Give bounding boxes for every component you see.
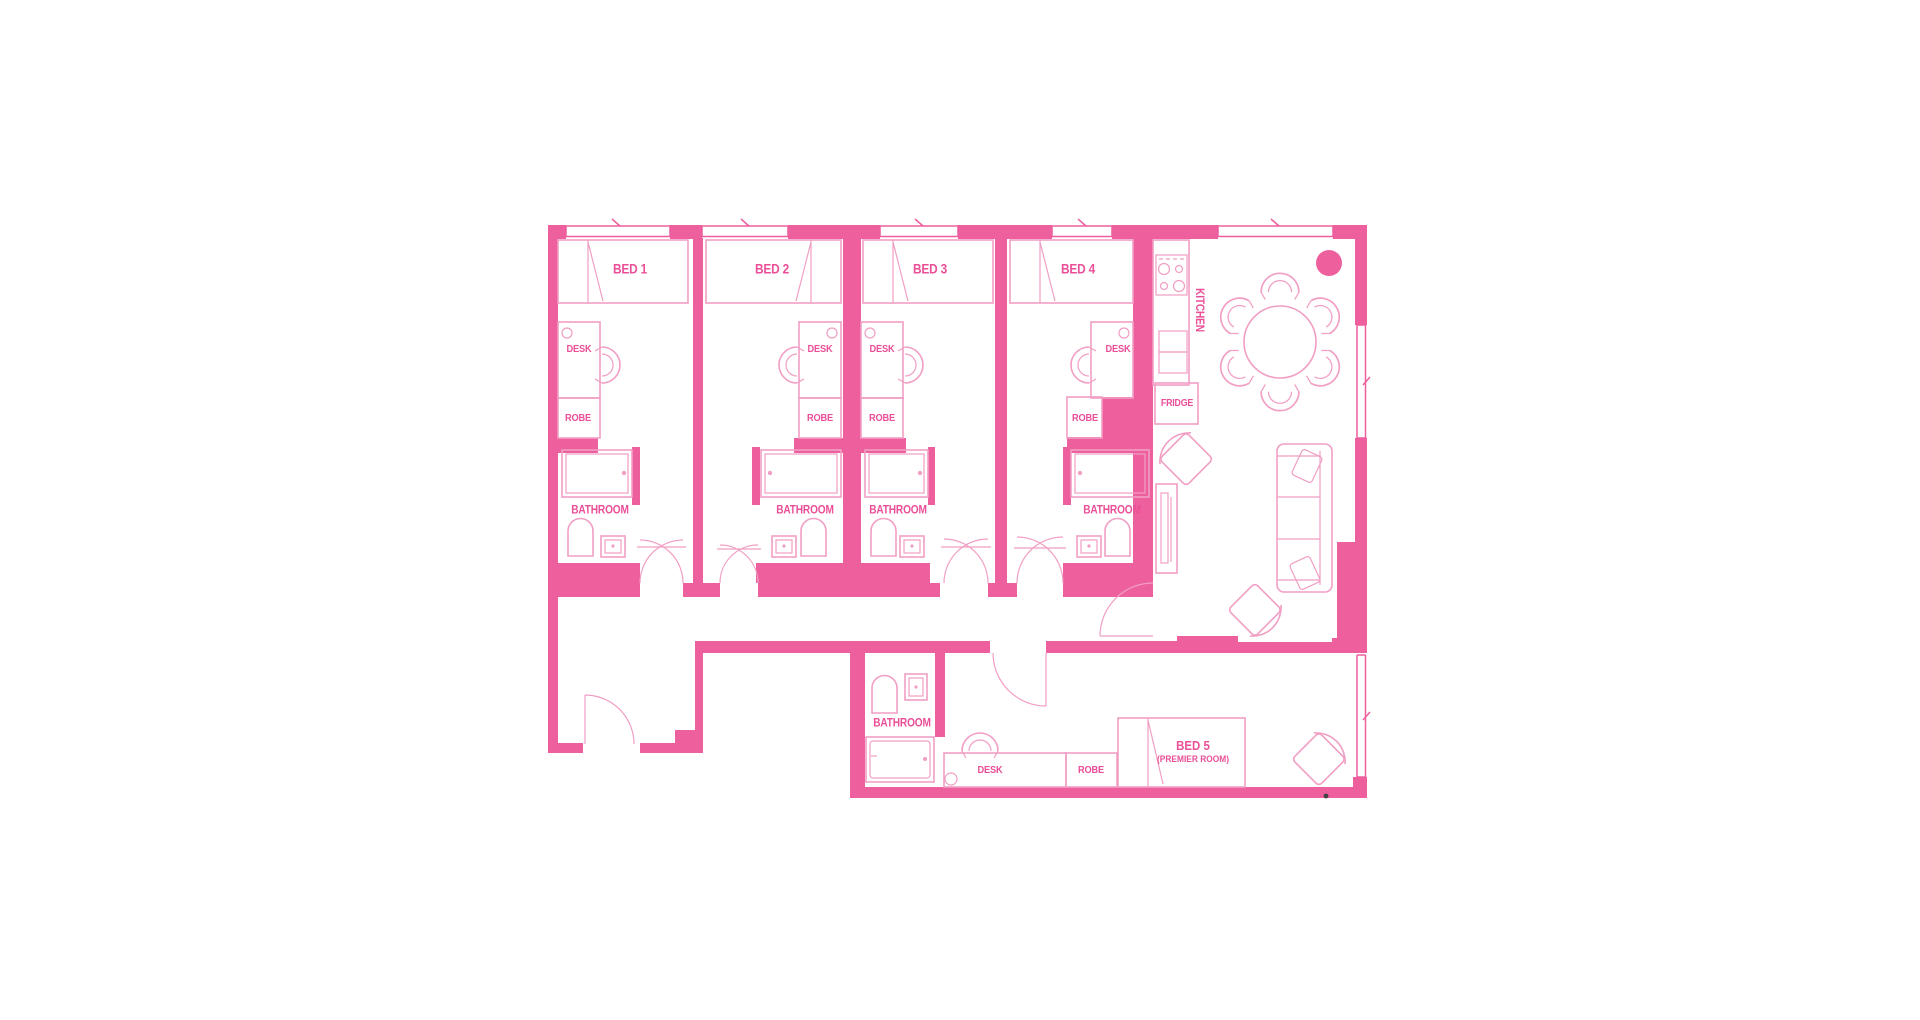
shower-icon [761,450,841,497]
sofa-icon [1277,444,1332,592]
window-bed1 [566,219,670,237]
label-bed5-title: BED 5 [1157,738,1229,754]
sink-icon [905,674,927,700]
desk-icon [1091,322,1133,398]
window-bed5-right [1357,655,1370,777]
kitchen-area [1153,240,1198,424]
sink-icon [772,536,796,557]
desk-icon [861,322,903,398]
dining-chair-icon [1214,291,1256,337]
toilet-icon [568,519,593,557]
door-swing [637,540,686,583]
label-bathroom-bed2: BATHROOM [776,505,833,517]
door-swing [717,545,761,583]
desk-icon [944,753,1066,787]
desk-icon [799,322,841,398]
label-bed5-subtitle: (PREMIER ROOM) [1157,754,1229,766]
desk-chair-icon [962,733,998,758]
armchair-icon [1290,726,1352,788]
toilet-icon [1105,519,1130,557]
sink-icon [601,536,625,557]
label-fridge: FRIDGE [1161,399,1193,409]
plan-mark [1324,794,1329,799]
desk-chair-icon [898,347,923,383]
window-bed4 [1052,219,1112,237]
label-bathroom-bed4: BATHROOM [1083,505,1140,517]
walls [548,225,1367,798]
wing-door-swing [993,653,1046,706]
living-dining-area [1153,250,1346,643]
label-bed3: BED 3 [913,262,947,276]
label-desk-bed2: DESK [808,344,833,355]
label-bathroom-bed3: BATHROOM [869,505,926,517]
window-living-top [1218,219,1333,237]
label-bed4: BED 4 [1061,262,1095,276]
label-robe-bed2: ROBE [807,413,833,424]
desk-chair-icon [1071,347,1096,383]
sink-icon [900,536,924,557]
shower-icon [562,450,632,497]
dining-chair-icon [1305,347,1347,393]
label-kitchen: KITCHEN [1192,288,1204,332]
floor-plan: BED 1 BED 2 BED 3 BED 4 DESK DESK DESK D… [0,0,1920,1020]
shower-icon [865,450,928,497]
label-bathroom-bed5: BATHROOM [873,718,930,730]
desk-icon [558,322,600,398]
dining-chair-icon [1305,291,1347,337]
label-desk-bed3: DESK [870,344,895,355]
label-bed2: BED 2 [755,262,789,276]
stool-icon [1316,250,1342,276]
toilet-icon [801,519,826,557]
label-desk-bed1: DESK [567,344,592,355]
sink-icon [1077,536,1101,557]
window-bed2 [702,219,788,237]
label-robe-bed5: ROBE [1078,765,1104,776]
dining-chair-icon [1214,347,1256,393]
door-swing [1014,537,1066,583]
kitchen-sink-icon [1159,331,1187,373]
tv-unit-icon [1156,484,1177,573]
toilet-icon [871,519,896,557]
window-living-right [1357,325,1370,438]
dining-chair-icon [1261,384,1299,410]
label-robe-bed1: ROBE [565,413,591,424]
desk-chair-icon [595,347,620,383]
desk-chair-icon [779,347,804,383]
armchair-icon [1153,426,1215,488]
cooktop-icon [1156,255,1187,295]
floor-plan-drawing [0,0,1920,1020]
bathtub-icon [866,737,934,782]
dining-table-icon [1244,306,1316,378]
entry-door-swing [585,695,634,744]
toilet-icon [872,675,897,713]
window-bed3 [880,219,958,237]
dining-chair-icon [1261,273,1299,299]
label-robe-bed4: ROBE [1072,413,1098,424]
label-bathroom-bed1: BATHROOM [571,505,628,517]
label-bed5: BED 5 (PREMIER ROOM) [1157,738,1229,766]
doors [585,583,1153,744]
label-bed1: BED 1 [613,262,647,276]
label-desk-bed5: DESK [978,765,1003,776]
door-swing [941,539,991,583]
label-robe-bed3: ROBE [869,413,895,424]
label-desk-bed4: DESK [1106,344,1131,355]
